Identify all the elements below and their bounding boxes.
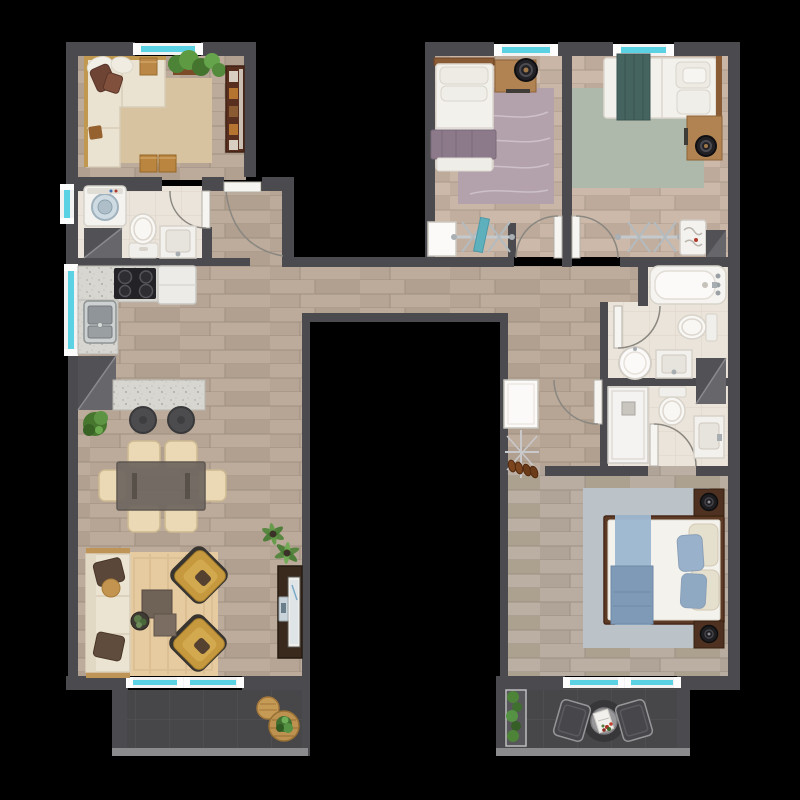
dining-table-mark-2 [185,473,190,499]
hall-wardrobe [504,380,538,428]
planter-plant-4 [511,721,521,731]
dining-table [117,462,205,510]
sofa-pillow-tan [102,579,120,597]
living-slider-cap-m1 [177,677,183,688]
dining-table-mark-1 [132,473,137,499]
burner-3 [120,286,131,297]
lounge-side-cube [140,58,157,75]
master-pillow-blue-2 [680,573,707,608]
planter-plant-5 [507,730,519,742]
entry-hall-floor [202,191,282,266]
bedroom1-door-leaf [554,216,562,258]
bed1-pillow-2 [441,86,487,101]
lounge-window-cap-l [133,43,141,55]
bar-stool-2-center [177,416,185,424]
burner-2 [140,271,152,283]
bed2-headboard [716,56,722,120]
bath-main-door-leaf [614,306,622,348]
balcony-plant-3 [276,724,284,732]
balcony-left-west-wall [112,676,127,756]
court-right-wall [500,313,508,676]
floor-plan-svg [0,0,800,800]
sofa-pillow-dark-2 [93,631,126,661]
bed1-foot [437,158,492,171]
bedroom1-window-glass [502,47,550,53]
washer-button-1 [115,190,118,193]
bed1-pillow-1 [440,67,488,84]
living-slider-cap-m2 [184,677,190,688]
bedroom1-window-cap-l [494,44,502,56]
vanity-1-basin [166,230,190,252]
hall-bath-wall [600,302,608,378]
balcony-right-parapet [496,748,690,756]
shower-tray [608,387,648,463]
kitchen-sink-basin-1 [88,306,112,324]
terrace-flower-2 [609,722,613,726]
balcony-right-west-wall [496,690,504,756]
master-slider-glass-r [626,680,673,685]
bedroom2-door-leaf [572,216,580,258]
balcony-plant-4 [282,717,289,724]
vanity-3-basin [699,423,719,449]
kitchen-plant-4 [95,426,103,434]
entry-hall-east-wall [282,177,294,257]
planter-plant-1 [507,691,519,703]
living-slider-glass-l [133,680,177,685]
terrace-flower-leaf-2 [602,725,605,728]
bedrooms-south-wall-mid [562,257,572,267]
void-top-left-wall [244,42,256,177]
bed2-pillow-2 [677,90,710,114]
bookshelf-item-2 [229,88,238,99]
kitchen-island [113,380,205,410]
console-art-mark [281,603,286,613]
living-slider-glass-r [187,680,236,685]
bath-window-cap-b [60,218,74,224]
corridor-floor [282,266,640,313]
toilet-1-button [139,247,148,251]
tub-faucet-1 [716,274,721,279]
bookshelf-item-3 [229,106,238,117]
laundry-basket [680,220,706,255]
burner-4 [140,285,153,298]
desk-1-edge [506,89,530,93]
tub-faucet-3 [716,291,721,296]
bookshelf-glass [239,69,243,149]
washer-panel [87,188,123,194]
vanity-2-faucet [672,370,677,375]
coffee-table-2 [154,614,176,636]
bed1-blanket [431,130,496,159]
master-slider-glass-l [570,680,618,685]
shower-drain [622,402,635,415]
kitchen-window-cap-b [64,349,78,356]
balcony-left-parapet [112,748,308,756]
sofa-trim-bottom [86,672,130,678]
bath-left-door-leaf [202,191,210,228]
toilet-2-tank [706,314,717,341]
bed2-pillow-small [683,68,706,83]
balcony-plant-2 [283,723,293,733]
master-bottom-wall-left [496,676,565,690]
hall-door-leaf [594,380,602,424]
master-slider-cap-r [674,677,681,688]
burner-1 [119,271,132,284]
kitchen-plant-2 [94,411,108,425]
court-top-wall [302,313,508,322]
master-slider-cap-m2 [625,677,631,688]
bar-stool-1-center [139,416,147,424]
lounge-left-wall [66,42,78,177]
bath-window-glass [64,190,70,218]
lounge-sofa-trim-left [84,58,88,167]
master-slider-cap-m1 [618,677,624,688]
bookshelf-item-5 [229,140,238,150]
void-top-bottom-wall [282,257,436,267]
living-slider-cap-r [237,677,244,688]
planter-plant-3 [506,710,518,722]
bath-left-east-wall [202,227,212,258]
balcony-left-east-wall [302,690,310,756]
master-pillow-blue-1 [677,534,704,572]
bath-main-west-wall [638,262,648,306]
lounge-accent-cushion [88,125,103,140]
toilet-3-tank [659,387,686,397]
floor-plant-2-pot [284,550,291,557]
vanity-1-faucet [176,252,181,257]
desk-chair-1-dot [524,68,529,73]
bath-kitchen-wall [66,258,250,266]
bookshelf-item-1 [229,71,238,82]
rw-top-wall-left [425,42,494,56]
round-basin-faucet [633,347,637,351]
sofa-trim-top [86,548,130,554]
bath-window-cap-t [60,184,74,190]
bedroom1-window-cap-r [550,44,558,56]
living-bottom-wall-right [242,676,310,690]
kitchen-window-cap-t [64,264,78,271]
drying-rack-1-knob-l [451,234,457,240]
lounge-door-leaf [224,182,261,192]
terrace-flower-leaf-1 [607,727,611,731]
court-left-wall [302,313,310,676]
vanity-3-faucet [717,434,722,441]
master-top-wall-left [545,466,648,476]
washer-drum-inner [98,200,112,214]
lamp-1-dot [708,501,711,504]
bathtub-drain [702,282,708,288]
laundry-red-item [694,238,698,242]
rw-east-wall [728,42,740,690]
desk-2-edge [684,128,688,145]
lamp-2-dot [708,633,711,636]
washer-button-2 [110,190,113,193]
bookshelf-item-4 [229,124,238,135]
kitchen-plant-3 [83,424,95,436]
bedrooms-south-wall-left [425,257,514,267]
floor-plan-stage [0,0,800,800]
bedroom2-window-cap-r [666,44,674,56]
drying-rack-1-knob-r [509,234,515,240]
kitchen-window-glass [68,271,74,349]
master-top-wall-right [696,466,740,476]
living-slider-cap-l [126,677,133,688]
bedroom2-window-glass [621,47,666,53]
shower-door-leaf [650,424,658,466]
drying-rack-2-knob-l [615,234,621,240]
plant-side-table-leaf-3 [136,622,142,628]
divider-wall-mid [202,177,224,191]
bedrooms-divider-wall [562,42,572,258]
tub-spout [712,282,717,288]
terrace-flower-3 [602,728,606,732]
floor-plant-1-pot [270,531,277,538]
master-bed-folded-blanket [611,566,653,624]
master-slider-cap-l [563,677,570,688]
desk-chair-2-dot [704,144,708,148]
kitchen-faucet [98,323,103,328]
lounge-plant-5 [212,63,226,77]
